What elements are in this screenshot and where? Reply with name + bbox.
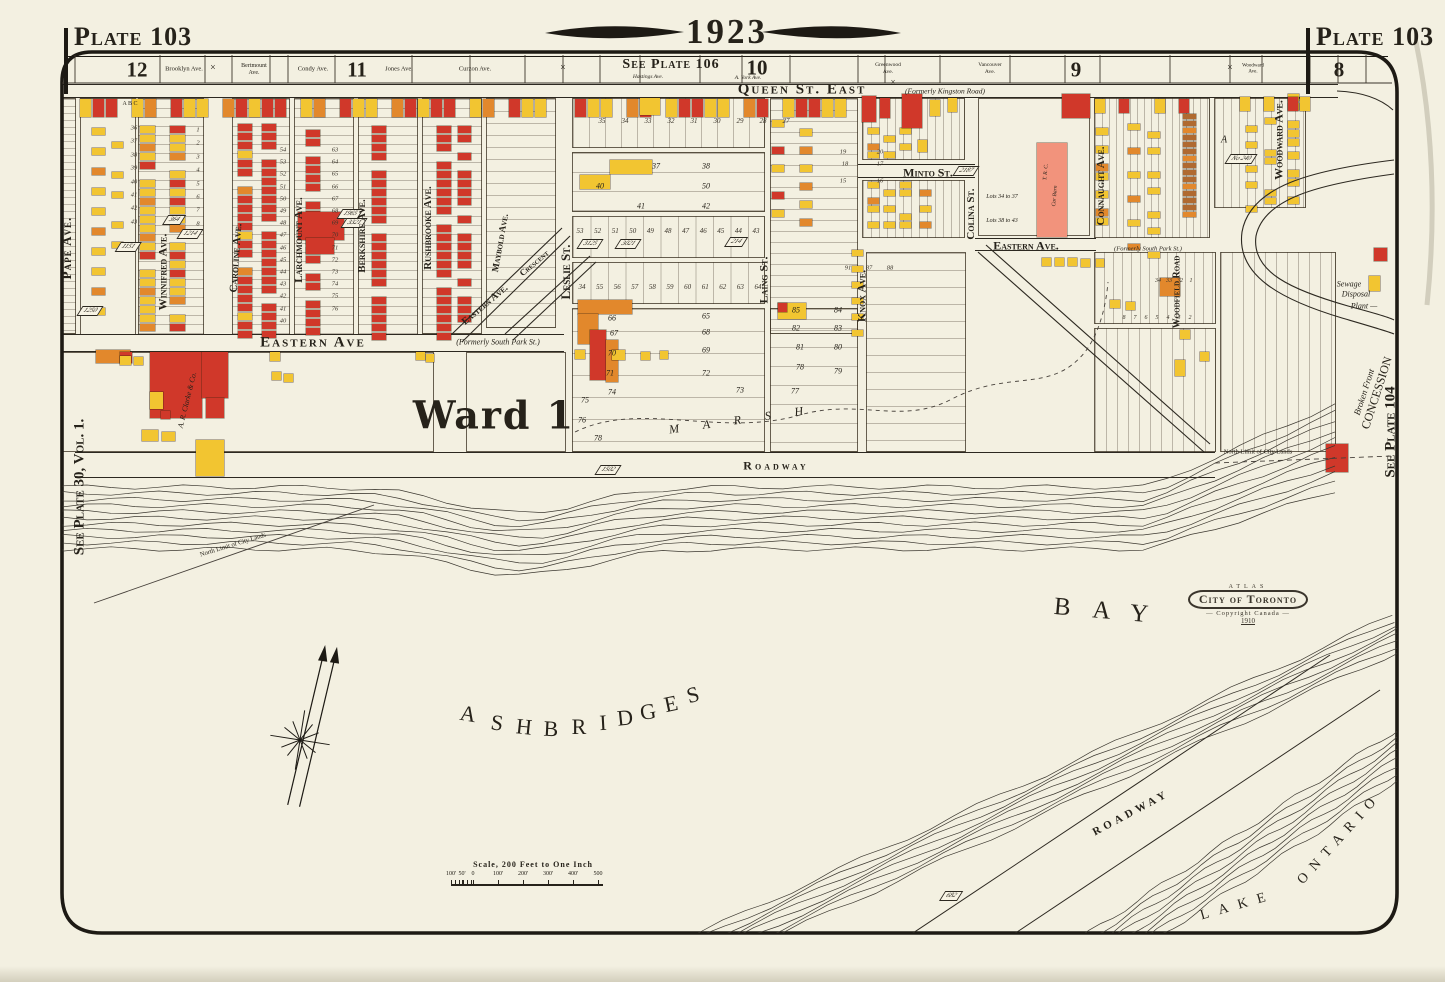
see-plate-30-label: See Plate 30, Vol. 1. xyxy=(72,419,89,556)
map-label: × xyxy=(1227,63,1233,74)
lot-number: 8 xyxy=(196,220,199,227)
lot-number: 49 xyxy=(280,208,287,215)
compass-rose xyxy=(260,640,345,809)
lot-number: 47 xyxy=(280,232,287,239)
lot-number: 59 xyxy=(667,283,674,291)
roadway-label: Roadway xyxy=(743,459,808,474)
map-label: Woodward xyxy=(1242,64,1264,69)
map-label: Lots 34 to 37 xyxy=(986,194,1018,200)
publisher-stamp: ATLAS City of Toronto — Copyright Canada… xyxy=(1178,584,1318,625)
map-label: 80 xyxy=(834,343,842,352)
lot-number: 30 xyxy=(714,117,721,125)
lot-number: 43 xyxy=(131,218,138,225)
lot-number: 68 xyxy=(332,208,339,215)
lot-number: 63 xyxy=(332,147,339,154)
scale-tick-label: 100' xyxy=(446,871,456,877)
map-label: 37 xyxy=(652,162,660,171)
map-label: 82 xyxy=(792,324,800,333)
scale-tick-label: 100' xyxy=(493,871,503,877)
scale-bar: Scale, 200 Feet to One Inch 100'50'0100'… xyxy=(443,860,623,891)
lot-number: 75 xyxy=(332,293,339,300)
ashbridges-bay-letter: H xyxy=(515,713,534,741)
stamp-year-text: 1910 xyxy=(1178,617,1318,625)
plate-flag-pole xyxy=(64,28,68,94)
lot-number: 29 xyxy=(737,117,744,125)
lot-number: 16 xyxy=(877,178,884,185)
map-label: 83 xyxy=(834,324,842,333)
map-label: 67 xyxy=(610,329,618,338)
map-label: Ave. xyxy=(248,70,259,76)
adjoining-plate-10: 10 xyxy=(747,56,768,81)
lot-number: 43 xyxy=(280,281,287,288)
lot-number: 46 xyxy=(700,227,707,235)
map-label: 65 xyxy=(702,312,710,321)
lot-number: 37 xyxy=(131,138,138,145)
lot-number: 2 xyxy=(1189,315,1192,321)
map-label: 69 xyxy=(702,346,710,355)
lot-number: 38 xyxy=(131,151,138,158)
map-label: A B C xyxy=(122,101,137,107)
lot-number: 64 xyxy=(332,159,339,166)
lot-number: 52 xyxy=(280,171,287,178)
lot-number: 34 xyxy=(579,283,586,291)
stamp-copyright-text: — Copyright Canada — xyxy=(1178,610,1318,617)
lot-number: 28 xyxy=(760,117,767,125)
map-label: × xyxy=(560,63,566,74)
lot-number: 6 xyxy=(196,194,199,201)
lot-number: 66 xyxy=(332,183,339,190)
lot-number: 53 xyxy=(280,159,287,166)
adjoining-plate-12: 12 xyxy=(127,58,148,83)
plate-number-right-text: Plate 103 xyxy=(1316,22,1434,51)
scale-tick xyxy=(598,880,599,885)
lot-number: 18 xyxy=(842,161,849,168)
scale-tick-label: 200' xyxy=(518,871,528,877)
street-label-woodward-ave: Woodward Ave. xyxy=(1272,100,1287,180)
lot-number: 69 xyxy=(332,220,339,227)
map-label: 77 xyxy=(791,387,799,396)
map-label: 68 xyxy=(702,328,710,337)
lot-number: 47 xyxy=(682,227,689,235)
street-label-pape-ave: Pape Ave. xyxy=(59,217,75,280)
map-label: Jones Ave. xyxy=(385,66,413,73)
lot-number: 71 xyxy=(332,244,339,251)
scale-tick xyxy=(548,880,549,885)
scale-tick xyxy=(462,880,463,885)
scale-tick xyxy=(573,880,574,885)
margin-strip xyxy=(62,55,1392,83)
lot-number: 74 xyxy=(332,281,339,288)
lot-number: 20 xyxy=(877,149,884,156)
map-label: 42 xyxy=(702,202,710,211)
map-label: 72 xyxy=(702,369,710,378)
map-label: 78 xyxy=(594,434,602,443)
map-label: 38 xyxy=(702,162,710,171)
lot-number: 43 xyxy=(753,227,760,235)
lot-number: 4 xyxy=(1167,315,1170,321)
lot-number: 19 xyxy=(840,149,847,156)
scale-tick-label: 400' xyxy=(568,871,578,877)
lot-number: 53 xyxy=(577,227,584,235)
map-label: 76 xyxy=(578,416,586,425)
plate-flag-pole xyxy=(1306,28,1310,94)
map-label: 81 xyxy=(796,343,804,352)
lot-number: 56 xyxy=(614,283,621,291)
map-label: 71 xyxy=(606,369,614,378)
lot-number: 15 xyxy=(840,178,847,185)
map-label: 79 xyxy=(834,367,842,376)
lot-number: 67 xyxy=(332,195,339,202)
lot-number: 44 xyxy=(735,227,742,235)
lot-number: 50 xyxy=(280,195,287,202)
year-ornament-right xyxy=(762,26,901,38)
map-label: Curzon Ave. xyxy=(459,66,491,73)
lot-number: 45 xyxy=(280,256,287,263)
lot-number: 62 xyxy=(719,283,726,291)
boundary-lines xyxy=(94,282,1392,603)
ashbridges-bay-letter: B xyxy=(543,716,559,743)
see-plate-104-label: See Plate 104 xyxy=(1383,386,1400,477)
lot-number: 72 xyxy=(332,256,339,263)
map-label: 84 xyxy=(834,306,842,315)
lot-number: 58 xyxy=(649,283,656,291)
street-label-laing-st: Laing St. xyxy=(757,257,772,304)
ward-1-label: Ward 1 xyxy=(413,393,575,438)
map-label: 50 xyxy=(702,182,710,191)
scale-tick-label: 300' xyxy=(543,871,553,877)
lot-number: 6 xyxy=(1145,315,1148,321)
map-linework xyxy=(0,0,1445,982)
ashbridges-bay-letter: I xyxy=(599,710,608,736)
lot-number: 32 xyxy=(668,117,675,125)
map-label: Vancouver xyxy=(978,62,1002,68)
lot-number: 42 xyxy=(131,205,138,212)
map-label: 78 xyxy=(796,363,804,372)
adjoining-plate-8: 8 xyxy=(1334,58,1345,83)
lot-number: 55 xyxy=(596,283,603,291)
lot-number: 35 xyxy=(599,117,606,125)
ashbridges-bay-letter: R xyxy=(572,714,587,740)
see-plate-106-label: See Plate 106 xyxy=(622,57,719,73)
lot-number: 27 xyxy=(783,117,790,125)
map-label: Lots 38 to 43 xyxy=(986,218,1018,224)
map-label: Eastern Ave. xyxy=(993,239,1059,254)
map-label: Ave. xyxy=(883,69,893,75)
map-label: (Formerly South Park St.) xyxy=(456,338,540,347)
scale-tick xyxy=(451,880,452,885)
scale-tick-label: 500 xyxy=(594,871,603,877)
street-label-leslie-st: Leslie St. xyxy=(558,245,574,300)
street-label-eastern-ave: Eastern Ave xyxy=(260,335,366,352)
stamp-city-text: City of Toronto xyxy=(1188,590,1308,609)
map-label: Brooklyn Ave. xyxy=(165,66,203,73)
street-label-larchmount-ave: Larchmount Ave. xyxy=(293,197,305,283)
year-title: 1923 xyxy=(686,12,762,52)
street-label-berkshire-ave: Berkshire Ave. xyxy=(356,199,368,273)
lot-number: 7 xyxy=(1134,315,1137,321)
lot-number: 48 xyxy=(280,220,287,227)
lot-number: 4 xyxy=(196,167,199,174)
map-border xyxy=(62,52,1397,933)
street-label-woodfield-road: Woodfield Road xyxy=(1172,256,1183,329)
map-label: Condy Ave. xyxy=(298,66,329,73)
shoreline-hatching xyxy=(63,404,1445,982)
lot-number: 49 xyxy=(647,227,654,235)
lot-number: 57 xyxy=(631,283,638,291)
lot-number: 51 xyxy=(280,183,287,190)
adjoining-plate-9: 9 xyxy=(1071,58,1082,83)
street-label-rushbrooke-ave: Rushbrooke Ave. xyxy=(422,186,434,269)
lot-number: 1 xyxy=(196,127,199,134)
scale-tick xyxy=(498,880,499,885)
lot-number: 41 xyxy=(280,305,287,312)
lot-number: 33 xyxy=(645,117,652,125)
scale-tick xyxy=(473,880,474,885)
map-label: Hastings Ave. xyxy=(633,74,663,80)
street-label-queen-st-east: Queen St. East xyxy=(738,82,867,99)
lot-number: 5 xyxy=(1156,315,1159,321)
street-label-connaught-ave: Connaught Ave. xyxy=(1095,146,1107,225)
street-label-knox-ave: Knox Ave. xyxy=(855,270,870,322)
plate-number-left: Plate 103 xyxy=(74,22,192,52)
plate-number-right: Plate 103 xyxy=(1316,22,1434,52)
lot-number: 42 xyxy=(280,293,287,300)
scale-tick-label: 50' xyxy=(458,871,465,877)
map-label: Ave. xyxy=(985,69,995,75)
lot-number: 70 xyxy=(332,232,339,239)
lot-number: 41 xyxy=(131,192,138,199)
street-label-minto-st: Minto St. xyxy=(903,166,953,181)
lot-number: 48 xyxy=(665,227,672,235)
ashbridges-bay-letter: D xyxy=(616,704,635,732)
lot-number: 88 xyxy=(887,265,894,272)
lot-number: 3 xyxy=(196,153,199,160)
lot-number: 76 xyxy=(332,305,339,312)
lot-number: 60 xyxy=(684,283,691,291)
sewage-disposal-label: Sewage xyxy=(1337,280,1361,289)
map-label: (Formerly South Park St.) xyxy=(1114,246,1182,253)
adjoining-plate-11: 11 xyxy=(347,58,367,83)
lot-number: 44 xyxy=(280,269,287,276)
lot-number: 45 xyxy=(717,227,724,235)
atlas-sheet: Plate 103 1923 Plate 103 312530212142187… xyxy=(0,0,1445,982)
map-label: (Formerly Kingston Road) xyxy=(905,87,985,96)
map-label: Disposal xyxy=(1342,290,1370,299)
map-label: Greenwood xyxy=(875,62,901,68)
map-label: Plant — xyxy=(1351,302,1377,311)
map-label: Ave. xyxy=(1248,70,1257,75)
lot-number: 52 xyxy=(594,227,601,235)
street-label-colina-st: Colina St. xyxy=(965,188,977,239)
scan-shadow xyxy=(0,966,1445,982)
lot-number: 17 xyxy=(877,161,884,168)
lot-number: 8 xyxy=(1123,315,1126,321)
lot-number: 54 xyxy=(280,147,287,154)
lot-number: 40 xyxy=(280,317,287,324)
map-label: 85 xyxy=(792,306,800,315)
lot-number: 34 xyxy=(1155,278,1161,284)
map-label: 74 xyxy=(608,388,616,397)
map-label: A xyxy=(1221,135,1227,146)
map-label: 73 xyxy=(736,386,744,395)
map-label: 66 xyxy=(608,314,616,323)
lot-number: 7 xyxy=(196,207,199,214)
map-label: 40 xyxy=(596,182,604,191)
lot-number: 63 xyxy=(737,283,744,291)
lot-number: 5 xyxy=(196,180,199,187)
scale-tick-label: 0 xyxy=(472,871,475,877)
map-label: Bertmount xyxy=(241,63,267,69)
street-label-winnifred-ave: Winnifred Ave. xyxy=(156,234,171,311)
map-label: × xyxy=(890,77,895,87)
lot-number: 2 xyxy=(196,140,199,147)
curved-roads xyxy=(452,91,1394,452)
lot-number: 73 xyxy=(332,269,339,276)
lot-number: 50 xyxy=(629,227,636,235)
lot-number: 65 xyxy=(332,171,339,178)
page-curl-shadow xyxy=(1416,42,1432,305)
lot-number: 46 xyxy=(280,244,287,251)
map-label: 70 xyxy=(608,349,616,358)
year-ornament-left xyxy=(545,26,684,38)
lot-number: 40 xyxy=(131,178,138,185)
scale-ruler: 100'50'0100'200'300'400'500 xyxy=(443,871,623,891)
lot-number: 31 xyxy=(691,117,698,125)
lot-number: 36 xyxy=(131,125,138,132)
map-label: North Limit of City Lands xyxy=(1224,449,1293,456)
lot-number: 1 xyxy=(1190,278,1193,284)
map-label: × xyxy=(210,63,216,74)
lot-number: 34 xyxy=(622,117,629,125)
map-label: 41 xyxy=(637,202,645,211)
plate-number-left-text: Plate 103 xyxy=(74,22,192,51)
map-label: 75 xyxy=(581,396,589,405)
lot-number: 91 xyxy=(845,265,852,272)
lot-number: 51 xyxy=(612,227,619,235)
lot-number: 39 xyxy=(131,165,138,172)
scale-title: Scale, 200 Feet to One Inch xyxy=(443,860,623,869)
scale-tick xyxy=(523,880,524,885)
lot-number: 61 xyxy=(702,283,709,291)
